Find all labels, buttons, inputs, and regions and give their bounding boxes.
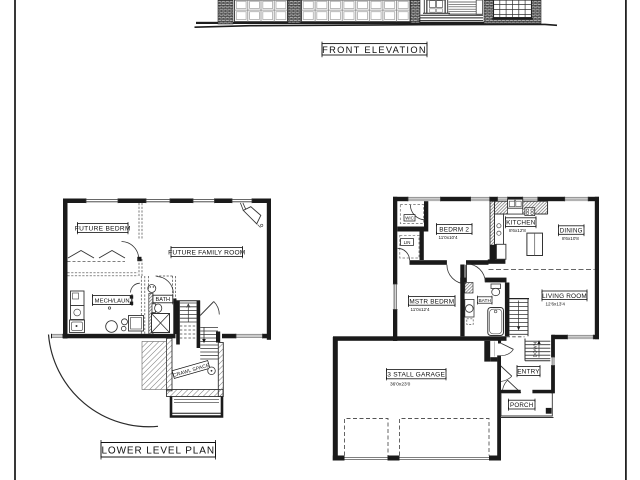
svg-text:FRONT ELEVATION: FRONT ELEVATION bbox=[322, 45, 427, 55]
svg-text:ENTRY: ENTRY bbox=[517, 369, 540, 376]
svg-text:8'6x10'8: 8'6x10'8 bbox=[562, 236, 579, 241]
svg-text:11'0x10'4: 11'0x10'4 bbox=[439, 235, 458, 240]
svg-text:PORCH: PORCH bbox=[510, 402, 533, 409]
svg-text:36'0x23'0: 36'0x23'0 bbox=[390, 381, 411, 387]
svg-text:MECH/LAUN: MECH/LAUN bbox=[95, 298, 130, 304]
svg-text:11'0x12'4: 11'0x12'4 bbox=[411, 307, 430, 312]
svg-text:BEDRM 2: BEDRM 2 bbox=[439, 227, 469, 234]
svg-text:8'6x12'8: 8'6x12'8 bbox=[509, 228, 526, 233]
svg-text:DOWN: DOWN bbox=[532, 342, 537, 358]
svg-text:BATH: BATH bbox=[156, 297, 171, 303]
svg-text:FUTURE BEDRM: FUTURE BEDRM bbox=[75, 226, 131, 233]
svg-text:12'6x13'4: 12'6x13'4 bbox=[546, 301, 566, 306]
svg-text:LIVING ROOM: LIVING ROOM bbox=[542, 293, 587, 300]
svg-text:KITCHEN: KITCHEN bbox=[506, 220, 536, 227]
svg-text:LOWER LEVEL PLAN: LOWER LEVEL PLAN bbox=[101, 446, 215, 457]
svg-text:LIN: LIN bbox=[404, 240, 411, 245]
svg-text:DINING: DINING bbox=[560, 228, 583, 235]
svg-text:FUTURE FAMILY ROOM: FUTURE FAMILY ROOM bbox=[168, 250, 245, 257]
svg-text:MSTR BEDRM: MSTR BEDRM bbox=[409, 298, 454, 305]
svg-text:BATH: BATH bbox=[478, 298, 491, 304]
svg-text:3 STALL GARAGE: 3 STALL GARAGE bbox=[387, 372, 445, 379]
svg-text:WIC: WIC bbox=[405, 216, 414, 221]
